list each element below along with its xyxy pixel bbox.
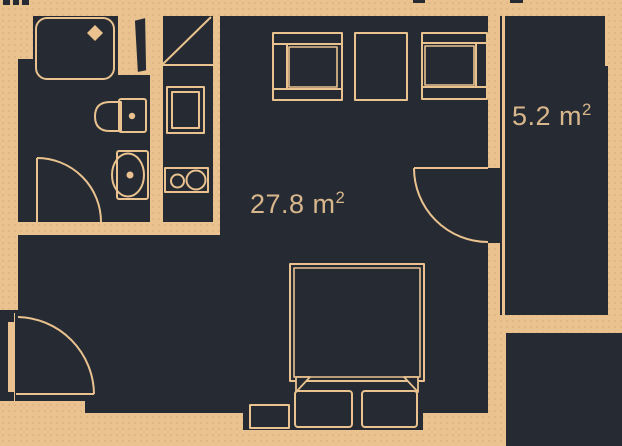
cropped-dimension-marks <box>3 0 523 5</box>
balcony-glazing <box>502 16 505 315</box>
balcony-floor <box>500 16 608 315</box>
balcony-doorway-floor <box>488 168 502 243</box>
utility-door-leaf <box>134 17 147 73</box>
adjacent-unit-floor <box>506 333 622 446</box>
flush-button-icon <box>129 113 135 119</box>
floor-plan: 27.8 m2 5.2 m2 <box>0 0 622 446</box>
tap-icon <box>127 172 134 179</box>
floor-plan-drawing <box>0 0 622 446</box>
entrance-door-jamb <box>8 313 15 401</box>
